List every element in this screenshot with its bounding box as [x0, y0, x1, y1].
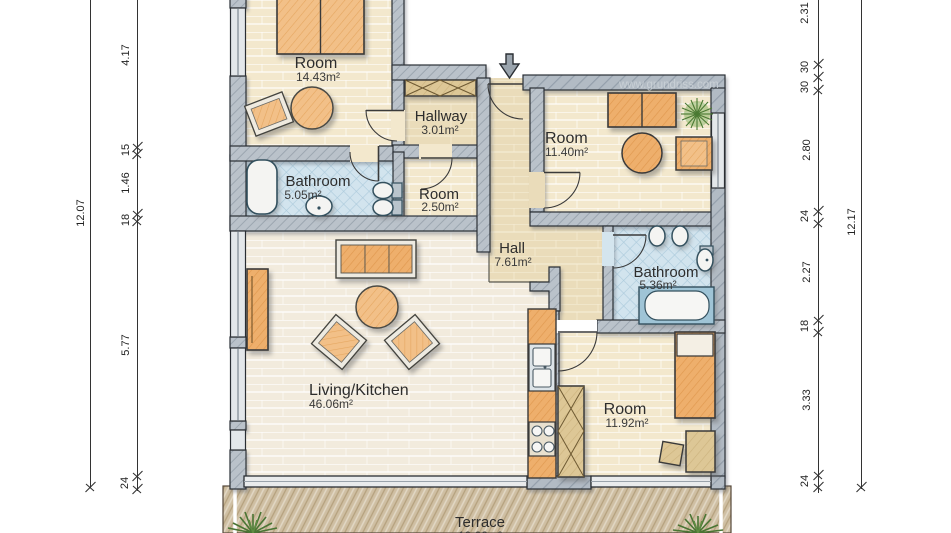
svg-text:www.grundriss.com: www.grundriss.com: [618, 79, 719, 91]
svg-text:3.01m²: 3.01m²: [421, 123, 458, 137]
svg-text:5.05m²: 5.05m²: [284, 188, 321, 202]
svg-text:24: 24: [799, 210, 811, 222]
svg-text:30: 30: [799, 61, 811, 73]
svg-text:12.17: 12.17: [846, 208, 858, 236]
svg-text:18: 18: [120, 214, 132, 226]
svg-text:18: 18: [799, 320, 811, 332]
svg-text:3.33: 3.33: [801, 389, 813, 410]
svg-text:2.31: 2.31: [799, 2, 811, 23]
svg-text:19.09m²: 19.09m²: [458, 529, 502, 533]
svg-text:11.40m²: 11.40m²: [545, 145, 588, 159]
svg-text:5.36m²: 5.36m²: [639, 278, 676, 292]
svg-text:2.50m²: 2.50m²: [421, 200, 458, 214]
svg-text:46.06m²: 46.06m²: [309, 397, 353, 411]
svg-text:24: 24: [799, 475, 811, 487]
svg-text:2.27: 2.27: [801, 261, 813, 282]
svg-text:5.77: 5.77: [120, 334, 132, 355]
svg-text:1.46: 1.46: [120, 172, 132, 193]
svg-text:15: 15: [120, 144, 132, 156]
svg-text:7.61m²: 7.61m²: [494, 255, 531, 269]
svg-text:30: 30: [799, 81, 811, 93]
svg-text:4.17: 4.17: [120, 44, 132, 65]
svg-text:2.80: 2.80: [801, 139, 813, 160]
svg-text:24: 24: [119, 477, 131, 489]
svg-text:14.43m²: 14.43m²: [296, 70, 340, 84]
svg-text:12.07: 12.07: [75, 199, 87, 227]
svg-text:11.92m²: 11.92m²: [605, 416, 648, 430]
